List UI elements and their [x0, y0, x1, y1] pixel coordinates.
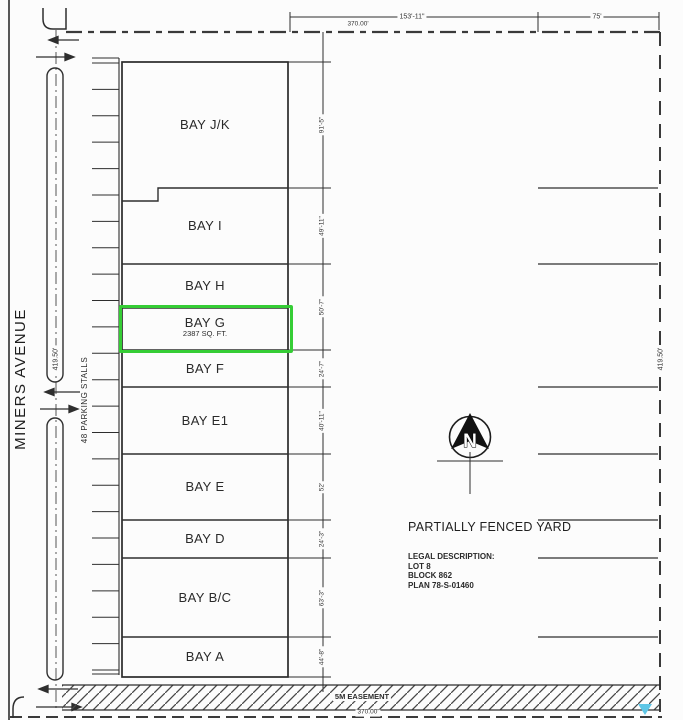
easement-label: 5M EASEMENT	[333, 693, 391, 701]
street-name: MINERS AVENUE	[13, 308, 29, 450]
top-left-span-dimension: 153'-11"	[397, 13, 426, 20]
bay-dimension-label: 63'-3"	[320, 587, 327, 608]
bay-label-bay-i[interactable]: BAY I	[122, 219, 288, 233]
bay-label-bay-f[interactable]: BAY F	[122, 362, 288, 376]
east-depth-dimension: 419.50'	[657, 346, 664, 373]
legal-description: LEGAL DESCRIPTION: LOT 8 BLOCK 862 PLAN …	[408, 552, 495, 590]
bay-dimension-label: 24'-7"	[320, 358, 327, 379]
top-right-span-dimension: 75'	[590, 13, 603, 20]
top-overall-dimension: 370.00'	[345, 22, 370, 29]
site-plan: N MINERS AVENUE 48 PARKING STALLS 419.50…	[0, 0, 683, 720]
bay-label-bay-h[interactable]: BAY H	[122, 279, 288, 293]
bay-label-bay-g[interactable]: BAY G	[122, 316, 288, 330]
bay-dimension-label: 50'-7"	[320, 297, 327, 318]
yard-label: PARTIALLY FENCED YARD	[408, 521, 571, 534]
bay-dimension-label: 91'-5"	[320, 115, 327, 136]
bay-dimension-label: 49'-11"	[320, 214, 327, 238]
legal-title: LEGAL DESCRIPTION:	[408, 552, 495, 562]
bay-label-bay-j-k[interactable]: BAY J/K	[122, 118, 288, 132]
bottom-overall-dimension: 370.00'	[355, 710, 380, 717]
parking-stalls-label: 48 PARKING STALLS	[81, 355, 89, 445]
bay-label-bay-b-c[interactable]: BAY B/C	[122, 591, 288, 605]
bay-dimension-label: 52'	[320, 481, 327, 493]
legal-plan: PLAN 78-S-01460	[408, 581, 495, 591]
bay-dimension-label: 44'-8"	[320, 647, 327, 668]
legal-block: BLOCK 862	[408, 571, 495, 581]
bay-label-bay-e1[interactable]: BAY E1	[122, 414, 288, 428]
bay-label-bay-a[interactable]: BAY A	[122, 650, 288, 664]
legal-lot: LOT 8	[408, 562, 495, 572]
bay-dimension-label: 40'-11"	[320, 409, 327, 433]
labels-layer: MINERS AVENUE 48 PARKING STALLS 419.50' …	[0, 0, 683, 720]
bay-area-label: 2387 SQ. FT.	[122, 330, 288, 338]
bay-dimension-label: 24'-3"	[320, 529, 327, 550]
bay-label-bay-e[interactable]: BAY E	[122, 480, 288, 494]
west-depth-dimension: 419.50'	[52, 346, 59, 373]
bay-label-bay-d[interactable]: BAY D	[122, 532, 288, 546]
